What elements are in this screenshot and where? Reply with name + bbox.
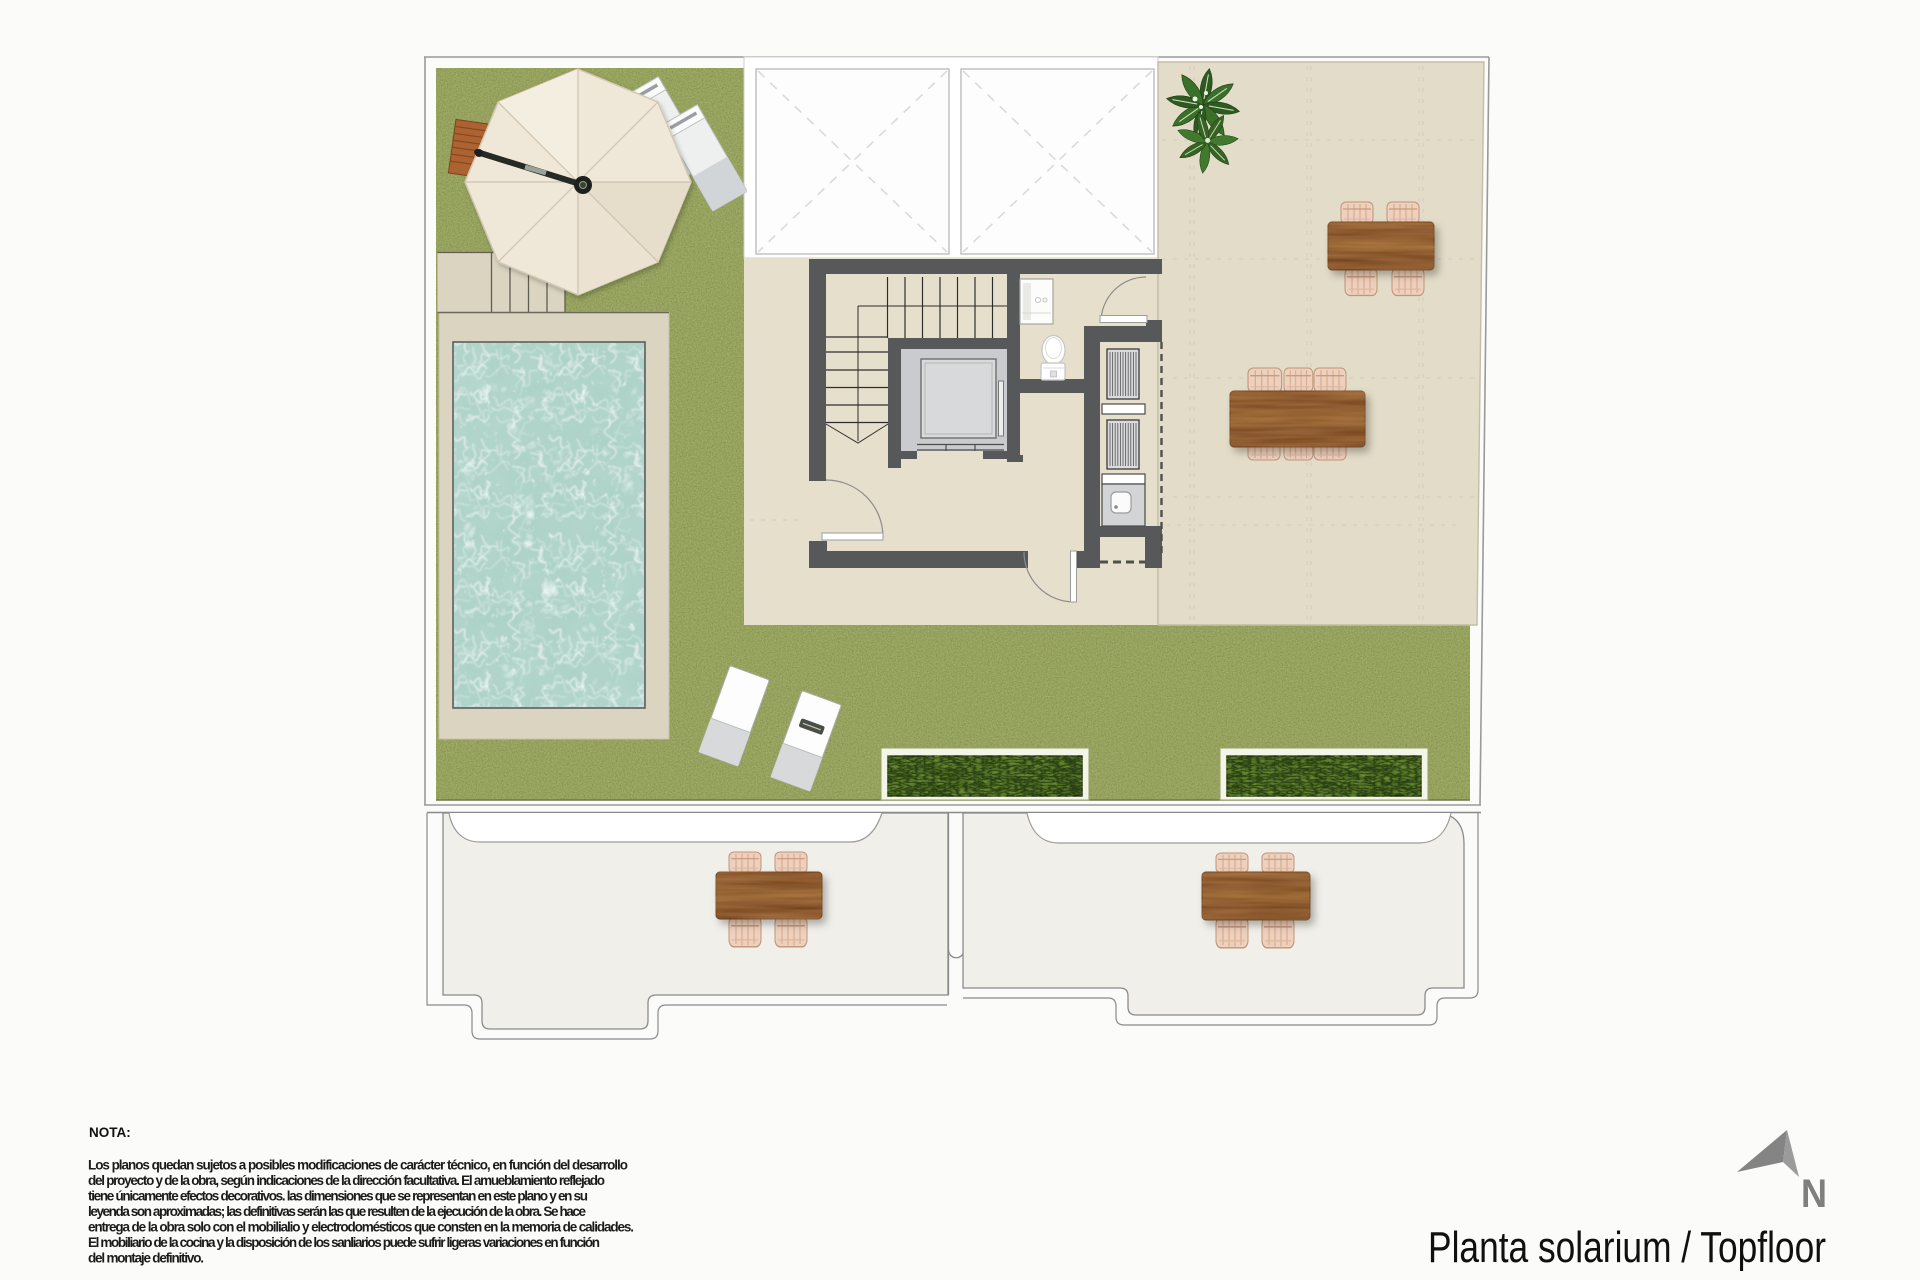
svg-text:leyenda son aproximadas; las d: leyenda son aproximadas; las definitivas… bbox=[88, 1204, 586, 1219]
svg-text:El mobiliario de la cocina y l: El mobiliario de la cocina y la disposic… bbox=[88, 1235, 600, 1250]
svg-text:NOTA:: NOTA: bbox=[89, 1125, 131, 1140]
svg-text:Planta solarium / Topfloor: Planta solarium / Topfloor bbox=[1428, 1223, 1826, 1272]
svg-text:del montaje definitivo.: del montaje definitivo. bbox=[88, 1251, 204, 1266]
svg-text:entrega de la obra solo con el: entrega de la obra solo con el mobiliali… bbox=[88, 1220, 634, 1235]
svg-text:del proyecto y de la obra, seg: del proyecto y de la obra, según indicac… bbox=[88, 1173, 605, 1188]
svg-text:N: N bbox=[1801, 1172, 1827, 1216]
svg-text:tiene únicamente efectos decor: tiene únicamente efectos decorativos. la… bbox=[88, 1189, 588, 1204]
svg-text:Los planos quedan sujetos a po: Los planos quedan sujetos a posibles mod… bbox=[88, 1158, 628, 1173]
